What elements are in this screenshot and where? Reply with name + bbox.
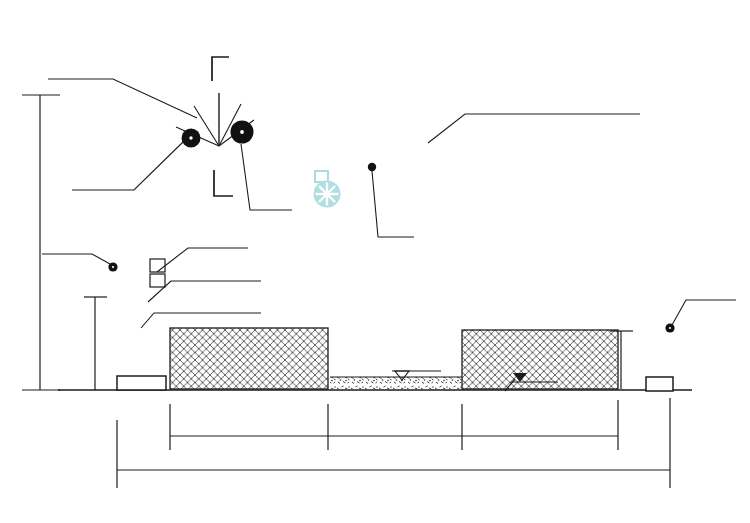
leader-inner-membrane — [372, 171, 414, 237]
dimension-lines — [22, 95, 670, 488]
leader-inner-insulation — [241, 144, 292, 210]
leader-unlabeled-ridge — [48, 79, 197, 118]
left-planting-bed — [170, 328, 328, 389]
leader-rear-vent — [42, 254, 110, 264]
leader-lines — [42, 79, 736, 328]
right-footing — [646, 377, 673, 391]
rear-insulation-roller-icon — [182, 129, 201, 148]
lower-vent-point — [665, 323, 674, 332]
drawing-canvas — [0, 0, 750, 523]
leader-rear-insulation — [72, 141, 184, 190]
water-storage-units — [150, 259, 165, 287]
leader-lower-vent — [672, 300, 736, 325]
inner-membrane-point — [368, 163, 376, 171]
leader-note-length — [141, 313, 261, 328]
inner-insulation-roller-icon — [231, 121, 254, 144]
left-footing — [117, 376, 166, 390]
detail-bracket-bottom-icon — [214, 170, 233, 196]
watermark-logo — [314, 171, 341, 208]
walkway-gravel-strip — [330, 377, 462, 389]
detail-bracket-top-icon — [212, 57, 229, 81]
greenhouse-section-drawing — [0, 0, 750, 523]
leader-water-storage — [157, 248, 248, 272]
leader-outer-membrane — [428, 114, 640, 143]
right-planting-bed — [462, 330, 618, 389]
